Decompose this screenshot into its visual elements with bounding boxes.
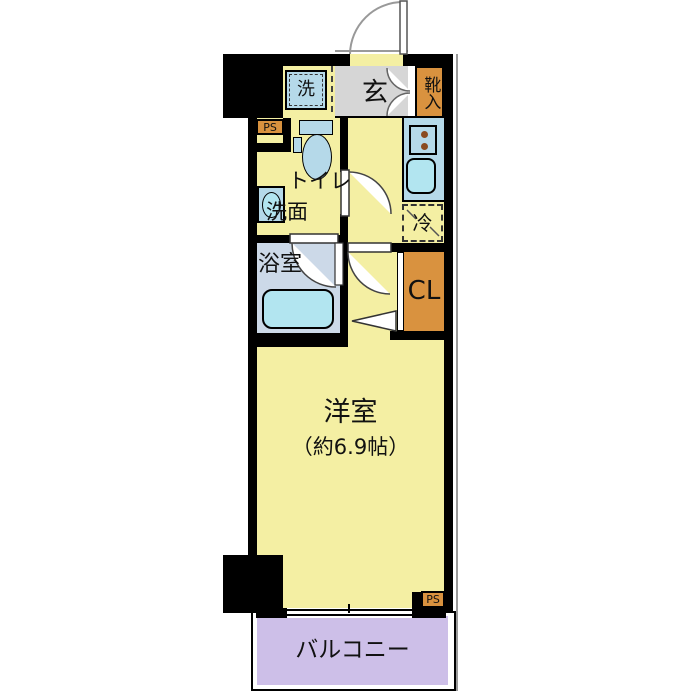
balcony-label: バルコニー [257,638,448,663]
main-room-door-leaf [348,243,391,252]
shoe-cabinet-door-arc [387,93,410,116]
washing-machine-label: 洗 [285,70,327,110]
entrance-door-leaf [400,1,407,54]
entrance-door-arc [350,2,403,54]
refrigerator-label: 冷 [402,204,443,242]
shoe-cabinet-door-arc [387,68,410,91]
western-room-label: 洋室 [257,398,444,428]
main-room-door-arc [348,252,390,294]
bathroom-door-leaf [290,234,338,243]
floor-plan: PS PS 玄 靴入 洗 トイレ 洗面 浴室 冷 CL 洋室 （約6.9帖） [0,0,700,700]
closet-label: CL [404,252,444,331]
shoe-cabinet-label: 靴入 [418,70,442,116]
washbasin-label: 洗面 [266,201,308,224]
door-symbols-layer [0,0,700,700]
entrance-label: 玄 [362,79,388,108]
washroom-door-arc [349,172,391,214]
toilet-label: トイレ [288,170,351,193]
bathroom-label: 浴室 [258,253,302,277]
western-room-size-label: （約6.9帖） [257,436,444,459]
closet-door-swing-triangle [352,311,396,331]
bathroom-door-panel [335,243,343,285]
